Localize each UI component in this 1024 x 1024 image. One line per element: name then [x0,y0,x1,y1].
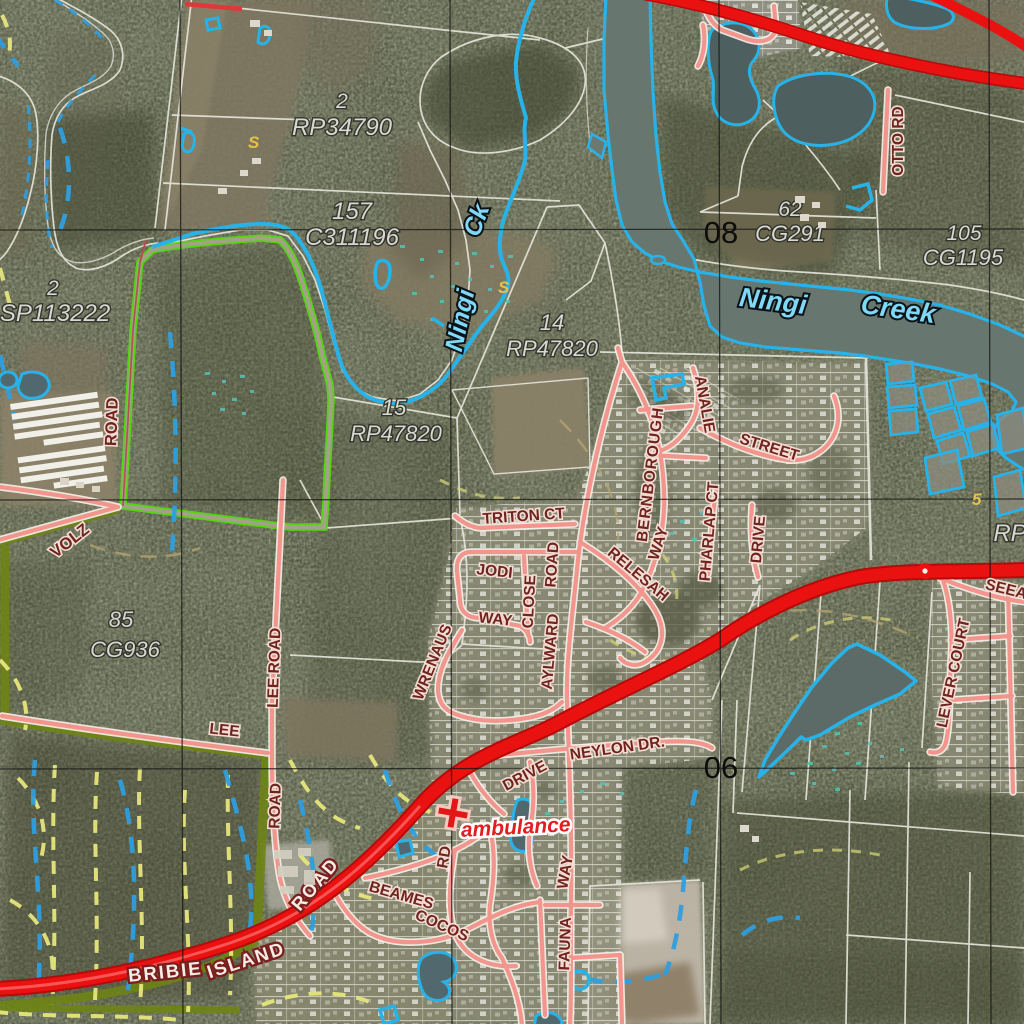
svg-text:RP34790: RP34790 [292,114,393,141]
svg-text:85: 85 [109,607,134,632]
svg-text:ROAD: ROAD [102,397,122,446]
svg-text:RP: RP [993,520,1024,547]
svg-text:WAY: WAY [478,609,514,630]
svg-text:RP47820: RP47820 [350,421,443,446]
svg-text:FAUNA: FAUNA [556,917,575,971]
svg-text:15: 15 [382,395,407,420]
svg-text:RP47820: RP47820 [506,336,599,361]
svg-text:LEE: LEE [209,720,241,740]
svg-text:105: 105 [946,222,981,245]
svg-text:ROAD: ROAD [266,783,285,829]
svg-text:OTTO RD: OTTO RD [890,106,907,175]
svg-text:C311196: C311196 [305,224,400,251]
svg-text:14: 14 [540,310,564,335]
svg-text:S: S [498,278,510,297]
svg-text:157: 157 [332,198,374,225]
svg-text:5: 5 [972,490,982,509]
svg-text:06: 06 [704,750,738,785]
svg-text:2: 2 [335,90,348,113]
svg-text:CLOSE: CLOSE [520,575,540,629]
svg-text:S: S [248,133,260,152]
svg-text:CG936: CG936 [90,637,160,662]
svg-text:ROAD: ROAD [542,541,562,588]
svg-text:CG291: CG291 [755,221,825,246]
svg-text:SP113222: SP113222 [0,300,110,327]
svg-text:08: 08 [704,215,738,250]
svg-text:LEE ROAD: LEE ROAD [265,628,285,709]
svg-text:CG1195: CG1195 [923,245,1004,270]
svg-text:2: 2 [46,277,59,300]
